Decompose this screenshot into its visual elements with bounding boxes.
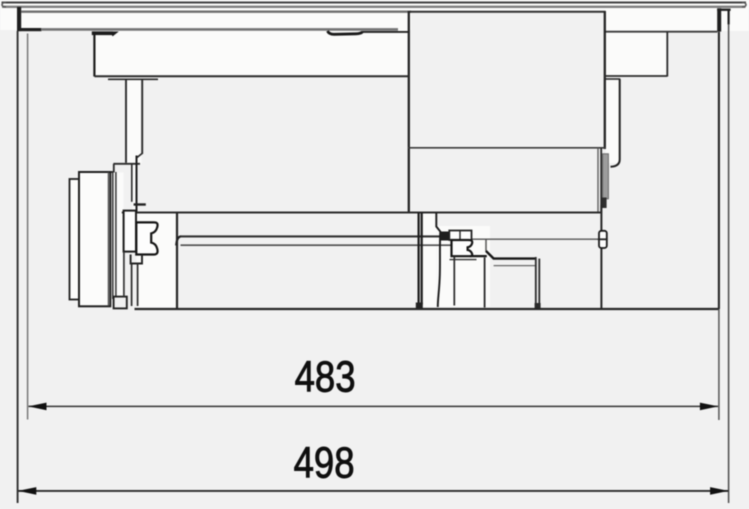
svg-text:498: 498 — [294, 439, 355, 488]
svg-text:483: 483 — [295, 352, 356, 401]
